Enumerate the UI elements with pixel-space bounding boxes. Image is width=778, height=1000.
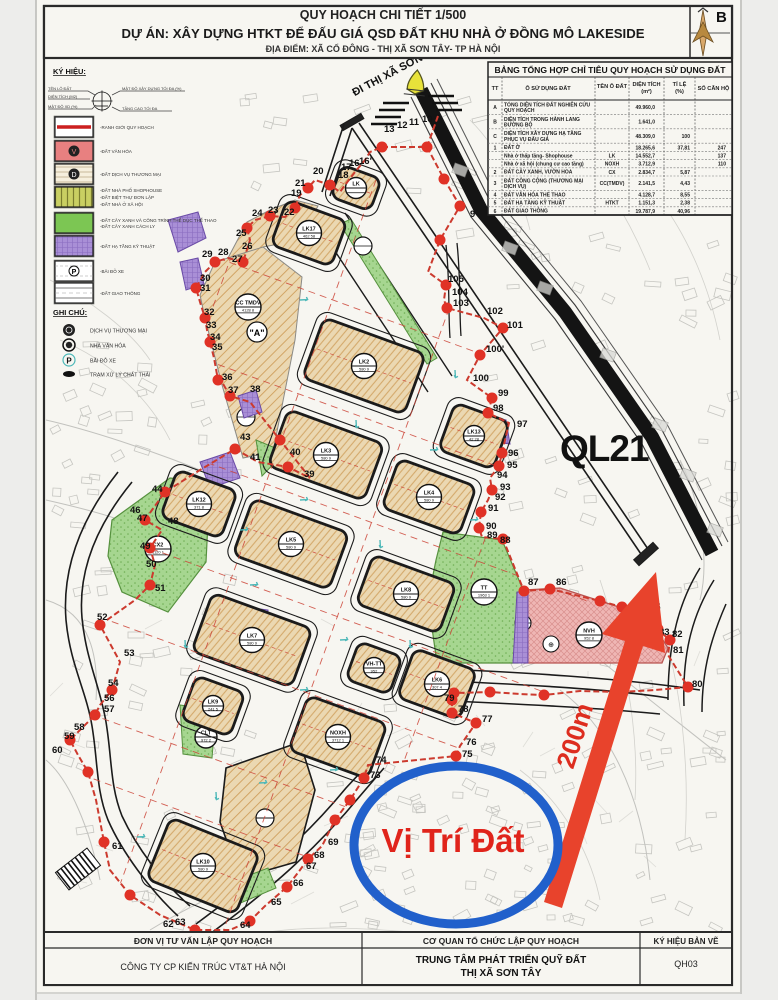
svg-text:16: 16 xyxy=(349,158,360,169)
svg-text:2.141,5: 2.141,5 xyxy=(638,181,655,187)
svg-text:DIỆN TÍCH: DIỆN TÍCH xyxy=(633,80,661,88)
svg-text:NOXH: NOXH xyxy=(330,731,346,737)
svg-text:1.151,3: 1.151,3 xyxy=(638,201,655,207)
svg-text:3.712,9: 3.712,9 xyxy=(638,162,655,168)
svg-text:TÊN LÔ ĐẤT: TÊN LÔ ĐẤT xyxy=(48,86,72,91)
svg-text:KÝ HIỆU BẢN VẼ: KÝ HIỆU BẢN VẼ xyxy=(654,937,720,946)
svg-text:1: 1 xyxy=(494,145,497,151)
svg-text:3712 1: 3712 1 xyxy=(332,738,345,743)
svg-text:95: 95 xyxy=(507,460,518,471)
svg-text:LK6: LK6 xyxy=(432,678,442,684)
svg-text:80: 80 xyxy=(692,679,703,690)
svg-text:5,87: 5,87 xyxy=(680,170,690,176)
svg-text:100: 100 xyxy=(682,134,691,140)
svg-text:20: 20 xyxy=(313,166,324,177)
svg-text:94: 94 xyxy=(497,470,508,481)
svg-text:NHÀ VĂN HÓA: NHÀ VĂN HÓA xyxy=(90,343,126,350)
svg-text:39: 39 xyxy=(304,469,315,480)
svg-text:580 9: 580 9 xyxy=(401,595,412,600)
svg-text:-ĐẤT CÂY XANH VÀ CÔNG TRÌNH TH: -ĐẤT CÂY XANH VÀ CÔNG TRÌNH THỂ DỤC THỂ … xyxy=(100,217,217,223)
svg-text:25: 25 xyxy=(236,228,247,239)
svg-text:92: 92 xyxy=(495,492,506,503)
svg-text:105: 105 xyxy=(448,274,465,285)
svg-text:NVH: NVH xyxy=(583,629,595,635)
svg-text:62: 62 xyxy=(163,919,174,930)
svg-text:58: 58 xyxy=(74,722,85,733)
svg-text:LK5: LK5 xyxy=(286,538,296,544)
svg-text:64: 64 xyxy=(240,920,251,931)
svg-text:ĐẤT HẠ TẦNG KỸ THUẬT: ĐẤT HẠ TẦNG KỸ THUẬT xyxy=(504,200,565,207)
svg-text:LK4: LK4 xyxy=(424,491,435,497)
svg-text:2.834,7: 2.834,7 xyxy=(638,170,655,176)
svg-text:86: 86 xyxy=(556,577,567,588)
svg-text:B: B xyxy=(493,120,497,126)
svg-text:13: 13 xyxy=(384,124,395,135)
svg-text:A: A xyxy=(493,105,497,111)
svg-text:CƠ QUAN TỔ CHỨC LẬP QUY HOẠCH: CƠ QUAN TỔ CHỨC LẬP QUY HOẠCH xyxy=(423,935,579,946)
svg-text:3: 3 xyxy=(494,181,497,187)
svg-text:31: 31 xyxy=(200,283,211,294)
svg-text:73: 73 xyxy=(370,770,381,781)
svg-text:-ĐẤT DỊCH VỤ THƯƠNG MẠI: -ĐẤT DỊCH VỤ THƯƠNG MẠI xyxy=(100,171,161,177)
svg-text:P: P xyxy=(72,269,77,276)
svg-text:43: 43 xyxy=(240,432,251,443)
svg-text:CÔNG TY CP KIẾN TRÚC VT&T HÀ N: CÔNG TY CP KIẾN TRÚC VT&T HÀ NỘI xyxy=(120,962,285,972)
svg-text:4.128,7: 4.128,7 xyxy=(638,193,655,199)
svg-text:247: 247 xyxy=(718,145,727,151)
svg-text:ĐẤT GIAO THÔNG: ĐẤT GIAO THÔNG xyxy=(504,207,548,215)
svg-text:THỊ XÃ SƠN TÂY: THỊ XÃ SƠN TÂY xyxy=(461,966,542,979)
svg-text:-ĐẤT GIAO THÔNG: -ĐẤT GIAO THÔNG xyxy=(100,290,141,296)
svg-text:-ĐẤT VĂN HÓA: -ĐẤT VĂN HÓA xyxy=(100,148,132,154)
svg-text:48: 48 xyxy=(168,516,179,527)
svg-text:PHỤC VỤ ĐẤU GIÁ: PHỤC VỤ ĐẤU GIÁ xyxy=(504,136,549,143)
svg-text:46: 46 xyxy=(130,505,141,516)
svg-text:ĐỊA ĐIỂM: XÃ CỔ ĐÔNG - THỊ XÃ: ĐỊA ĐIỂM: XÃ CỔ ĐÔNG - THỊ XÃ SƠN TÂY- T… xyxy=(266,43,501,54)
svg-text:LK2: LK2 xyxy=(359,360,369,366)
svg-text:VH-TT: VH-TT xyxy=(366,662,383,668)
svg-text:C: C xyxy=(493,134,497,140)
svg-text:MẬT ĐỘ XÂY DỰNG TỐI ĐA (%): MẬT ĐỘ XÂY DỰNG TỐI ĐA (%) xyxy=(122,86,182,91)
svg-text:-ĐẤT BIỆT THỰ ĐƠN LẬP: -ĐẤT BIỆT THỰ ĐƠN LẬP xyxy=(100,193,154,200)
svg-text:580 9: 580 9 xyxy=(247,641,258,646)
svg-text:137: 137 xyxy=(718,154,727,160)
svg-text:75: 75 xyxy=(462,749,473,760)
svg-text:BẢNG TỔNG HỢP CHỈ TIÊU QUY HOẠ: BẢNG TỔNG HỢP CHỈ TIÊU QUY HOẠCH SỬ DỤNG… xyxy=(495,64,727,75)
svg-text:TỈ LỆ: TỈ LỆ xyxy=(673,80,687,88)
svg-text:QUY HOẠCH: QUY HOẠCH xyxy=(504,108,535,114)
svg-text:LK: LK xyxy=(609,154,616,160)
svg-text:QH03: QH03 xyxy=(674,959,698,969)
svg-text:82: 82 xyxy=(672,629,683,640)
svg-text:1963 1: 1963 1 xyxy=(478,593,491,598)
svg-text:2,38: 2,38 xyxy=(680,201,690,207)
svg-text:5: 5 xyxy=(494,201,497,207)
svg-text:SỐ CĂN HỘ: SỐ CĂN HỘ xyxy=(698,84,730,92)
svg-text:42 28: 42 28 xyxy=(469,437,480,442)
svg-text:580 9: 580 9 xyxy=(321,456,332,461)
svg-text:33: 33 xyxy=(206,320,217,331)
svg-text:36: 36 xyxy=(222,372,233,383)
svg-text:952: 952 xyxy=(371,669,378,674)
svg-text:14.552,7: 14.552,7 xyxy=(636,154,656,160)
svg-text:241 5: 241 5 xyxy=(208,707,219,712)
svg-text:2: 2 xyxy=(494,170,497,176)
svg-text:TT: TT xyxy=(481,586,488,592)
svg-text:56: 56 xyxy=(104,693,115,704)
svg-text:LK13: LK13 xyxy=(467,430,480,436)
svg-text:44: 44 xyxy=(152,484,163,495)
svg-text:63: 63 xyxy=(175,917,186,928)
svg-text:37,81: 37,81 xyxy=(677,145,690,151)
svg-text:97: 97 xyxy=(517,419,528,430)
svg-text:⊕: ⊕ xyxy=(548,642,554,649)
svg-text:40: 40 xyxy=(290,447,301,458)
svg-text:DIỆN TÍCH (M2): DIỆN TÍCH (M2) xyxy=(48,94,78,99)
svg-text:49.960,0: 49.960,0 xyxy=(636,105,656,111)
svg-text:952 8: 952 8 xyxy=(584,636,595,641)
svg-text:TẦNG CAO TỐI ĐA: TẦNG CAO TỐI ĐA xyxy=(122,106,158,111)
svg-text:ĐẤT Ở: ĐẤT Ở xyxy=(504,144,521,151)
svg-text:66: 66 xyxy=(293,878,304,889)
svg-text:88: 88 xyxy=(500,535,511,546)
svg-text:103: 103 xyxy=(453,298,469,309)
svg-text:-BÃI ĐỖ XE: -BÃI ĐỖ XE xyxy=(100,268,124,274)
svg-text:CX: CX xyxy=(609,170,617,176)
svg-text:37: 37 xyxy=(228,385,239,396)
svg-text:TRẠM XỬ LÝ CHẤT THẢI: TRẠM XỬ LÝ CHẤT THẢI xyxy=(90,372,150,379)
svg-text:35: 35 xyxy=(212,342,223,353)
svg-text:DỰ ÁN: XÂY DỰNG HTKT ĐỂ ĐẤU GI: DỰ ÁN: XÂY DỰNG HTKT ĐỂ ĐẤU GIÁ QSD ĐẤT … xyxy=(121,26,644,41)
svg-text:LK9: LK9 xyxy=(208,700,218,706)
svg-text:9: 9 xyxy=(470,209,475,220)
svg-text:LK17: LK17 xyxy=(302,227,315,233)
svg-text:38: 38 xyxy=(250,384,261,395)
svg-text:CC TMDV: CC TMDV xyxy=(235,301,260,307)
svg-text:DỊCH VỤ THƯƠNG MẠI: DỊCH VỤ THƯƠNG MẠI xyxy=(90,329,147,335)
svg-text:Nhà ở thấp tầng- Shophouse: Nhà ở thấp tầng- Shophouse xyxy=(504,152,573,159)
svg-text:TRUNG TÂM PHÁT TRIỂN QUỸ ĐẤT: TRUNG TÂM PHÁT TRIỂN QUỸ ĐẤT xyxy=(416,953,587,966)
svg-text:-ĐẤT NHÀ Ở XÃ HỘI: -ĐẤT NHÀ Ở XÃ HỘI xyxy=(100,201,143,207)
svg-text:99: 99 xyxy=(498,388,509,399)
svg-text:P: P xyxy=(66,357,72,366)
svg-text:61: 61 xyxy=(112,841,123,852)
svg-text:580 9: 580 9 xyxy=(286,545,297,550)
svg-text:27: 27 xyxy=(232,254,243,265)
svg-text:68: 68 xyxy=(314,850,325,861)
svg-text:"A": "A" xyxy=(249,328,264,338)
svg-text:GHI CHÚ:: GHI CHÚ: xyxy=(53,308,87,317)
svg-text:LK7: LK7 xyxy=(247,634,257,640)
svg-text:110: 110 xyxy=(718,162,726,168)
svg-text:52: 52 xyxy=(97,612,108,623)
svg-text:78: 78 xyxy=(458,704,469,715)
svg-text:Ô SỬ DỤNG ĐẤT: Ô SỬ DỤNG ĐẤT xyxy=(525,84,571,92)
svg-text:MẬT ĐỘ XD (%): MẬT ĐỘ XD (%) xyxy=(48,104,78,109)
svg-text:NOXH: NOXH xyxy=(605,162,620,168)
svg-text:19.787,9: 19.787,9 xyxy=(636,209,656,215)
svg-text:67: 67 xyxy=(306,861,317,872)
svg-text:QL21: QL21 xyxy=(560,428,649,469)
svg-text:98: 98 xyxy=(493,403,504,414)
svg-text:462 58: 462 58 xyxy=(303,234,316,239)
svg-text:307 4: 307 4 xyxy=(432,685,443,690)
svg-text:26: 26 xyxy=(242,241,253,252)
svg-text:TÊN Ô ĐẤT: TÊN Ô ĐẤT xyxy=(597,82,628,90)
svg-text:LK: LK xyxy=(352,182,359,188)
svg-text:ĐẤT CÂY XANH, VƯỜN HOA: ĐẤT CÂY XANH, VƯỜN HOA xyxy=(504,168,573,176)
svg-text:ĐƠN VỊ TƯ VẤN LẬP QUY HOẠCH: ĐƠN VỊ TƯ VẤN LẬP QUY HOẠCH xyxy=(134,935,272,946)
svg-text:53: 53 xyxy=(124,648,135,659)
svg-text:-RANH GIỚI QUY HOẠCH: -RANH GIỚI QUY HOẠCH xyxy=(100,124,154,130)
svg-text:LK8: LK8 xyxy=(401,588,411,594)
svg-text:12: 12 xyxy=(397,120,408,131)
svg-text:100: 100 xyxy=(473,373,489,384)
svg-text:104: 104 xyxy=(452,287,469,298)
svg-text:4,43: 4,43 xyxy=(680,181,690,187)
svg-text:16': 16' xyxy=(359,156,372,167)
svg-text:Vị Trí Đất: Vị Trí Đất xyxy=(381,822,524,859)
svg-text:972 2: 972 2 xyxy=(201,738,212,743)
svg-text:54: 54 xyxy=(108,678,119,689)
svg-text:Nhà ở xã hội (chung cư cao tần: Nhà ở xã hội (chung cư cao tầng) xyxy=(504,162,584,168)
svg-text:B: B xyxy=(716,9,727,26)
svg-text:580 9: 580 9 xyxy=(424,498,435,503)
svg-text:34: 34 xyxy=(210,332,221,343)
svg-text:(m²): (m²) xyxy=(641,88,652,95)
svg-text:89: 89 xyxy=(487,530,498,541)
svg-text:580 9: 580 9 xyxy=(359,367,370,372)
svg-text:ĐƯỜNG BỘ: ĐƯỜNG BỘ xyxy=(504,120,533,128)
svg-text:87: 87 xyxy=(528,577,539,588)
svg-text:57: 57 xyxy=(104,704,115,715)
svg-text:81: 81 xyxy=(673,645,684,656)
svg-text:V: V xyxy=(72,149,77,156)
svg-text:29: 29 xyxy=(202,249,213,260)
svg-text:KÝ HIỆU:: KÝ HIỆU: xyxy=(53,67,86,76)
svg-text:580 9: 580 9 xyxy=(198,867,209,872)
svg-text:23: 23 xyxy=(268,205,279,216)
svg-text:-ĐẤT NHÀ PHỐ SHOPHOUSE: -ĐẤT NHÀ PHỐ SHOPHOUSE xyxy=(100,187,162,193)
svg-text:18.265,6: 18.265,6 xyxy=(636,145,656,151)
svg-text:(%): (%) xyxy=(675,89,684,95)
svg-text:49: 49 xyxy=(140,541,151,552)
svg-text:8,55: 8,55 xyxy=(680,193,690,199)
svg-text:19: 19 xyxy=(291,188,302,199)
svg-text:77: 77 xyxy=(482,714,493,725)
svg-text:-ĐẤT CÂY XANH CÁCH LY: -ĐẤT CÂY XANH CÁCH LY xyxy=(100,223,155,229)
svg-text:96: 96 xyxy=(508,448,519,459)
svg-text:HTKT: HTKT xyxy=(605,201,618,207)
svg-text:1.641,0: 1.641,0 xyxy=(638,120,655,126)
svg-text:CC(TMDV): CC(TMDV) xyxy=(600,181,625,187)
svg-text:BÃI ĐỖ XE: BÃI ĐỖ XE xyxy=(90,358,116,365)
svg-text:D: D xyxy=(71,172,76,179)
svg-text:48.309,0: 48.309,0 xyxy=(636,134,656,140)
svg-text:76: 76 xyxy=(466,737,477,748)
svg-text:51: 51 xyxy=(155,583,166,594)
svg-text:32: 32 xyxy=(204,307,215,318)
svg-text:LK10: LK10 xyxy=(196,860,209,866)
svg-text:10: 10 xyxy=(422,114,433,125)
svg-text:24: 24 xyxy=(252,208,263,219)
svg-text:LK12: LK12 xyxy=(192,498,205,504)
svg-text:59: 59 xyxy=(64,731,75,742)
svg-text:11: 11 xyxy=(409,117,420,128)
svg-text:30: 30 xyxy=(200,273,211,284)
svg-text:50: 50 xyxy=(146,559,157,570)
svg-text:ĐẤT VĂN HÓA THỂ THAO: ĐẤT VĂN HÓA THỂ THAO xyxy=(504,190,566,198)
svg-text:91: 91 xyxy=(488,503,499,514)
svg-text:69: 69 xyxy=(328,837,339,848)
svg-text:79: 79 xyxy=(444,693,455,704)
svg-text:74: 74 xyxy=(376,755,387,766)
svg-text:371 8: 371 8 xyxy=(194,505,205,510)
svg-text:4128 8: 4128 8 xyxy=(242,308,255,313)
svg-text:6: 6 xyxy=(494,209,497,215)
svg-text:65: 65 xyxy=(271,897,282,908)
svg-text:60: 60 xyxy=(52,745,63,756)
svg-text:41: 41 xyxy=(250,452,261,463)
svg-text:40,96: 40,96 xyxy=(677,209,690,215)
svg-text:LK3: LK3 xyxy=(321,449,331,455)
svg-text:-ĐẤT HẠ TẦNG KỸ THUẬT: -ĐẤT HẠ TẦNG KỸ THUẬT xyxy=(100,243,155,249)
svg-text:4: 4 xyxy=(494,193,497,199)
svg-text:QUY HOẠCH CHI TIẾT 1/500: QUY HOẠCH CHI TIẾT 1/500 xyxy=(300,7,467,22)
svg-text:100': 100' xyxy=(486,344,504,355)
svg-text:DỊCH VỤ): DỊCH VỤ) xyxy=(504,184,527,190)
svg-text:28: 28 xyxy=(218,247,229,258)
svg-text:102: 102 xyxy=(487,306,503,317)
svg-text:22: 22 xyxy=(284,207,295,218)
svg-text:TT: TT xyxy=(492,86,499,92)
svg-text:101: 101 xyxy=(507,320,524,331)
